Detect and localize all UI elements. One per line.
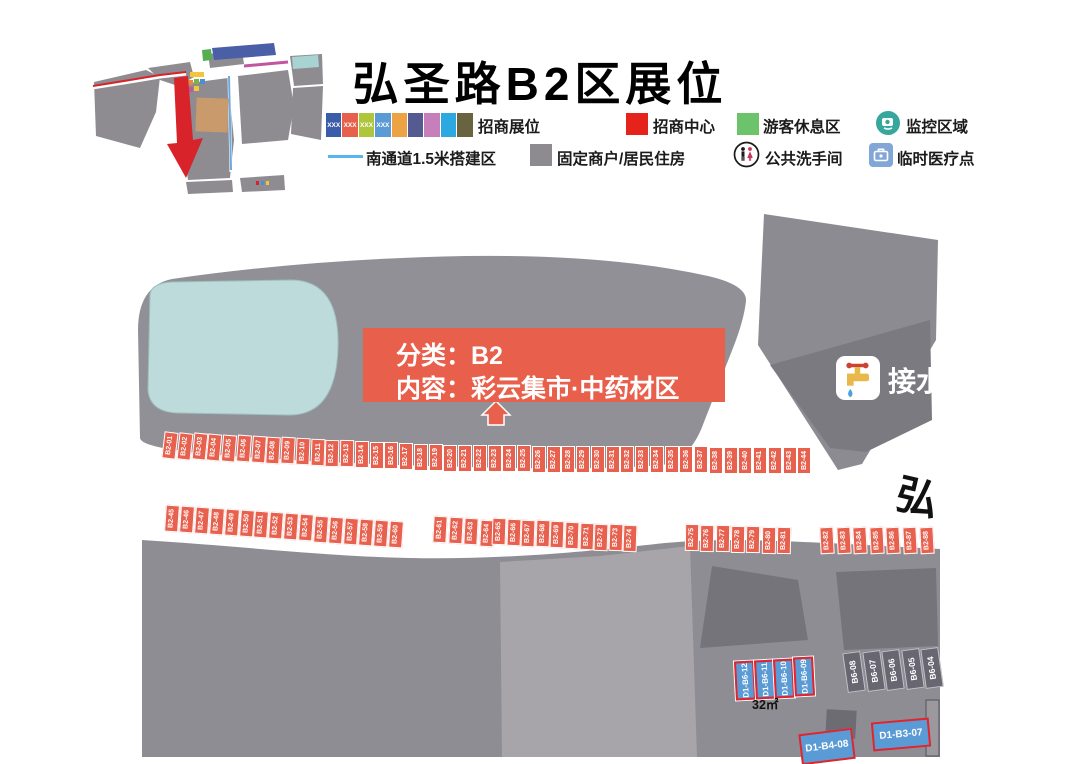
booth-id: B2-25 — [521, 449, 528, 468]
booth-label: B2-35 — [665, 446, 679, 473]
booth-label: B2-50 — [239, 510, 255, 538]
booth-id: B2-10 — [299, 442, 307, 461]
booth-label: B2-44 — [797, 447, 811, 474]
booth-label: B2-32 — [620, 446, 634, 473]
booth-label: B2-33 — [635, 446, 649, 473]
booth-label: B2-66 — [506, 519, 521, 546]
booth-label: B2-31 — [606, 446, 620, 473]
booth-label: B2-39 — [724, 447, 738, 474]
booth-label: B2-49 — [224, 509, 240, 537]
booth-id: B2-73 — [612, 528, 620, 547]
booth-id: B2-77 — [719, 529, 726, 548]
booth-label-d1-b4-08: D1-B4-08 — [798, 728, 855, 764]
booth-label: B2-04 — [206, 433, 223, 461]
booth-id: B2-70 — [568, 526, 576, 545]
booth-id: B2-72 — [597, 527, 605, 546]
booth-id: B2-42 — [771, 451, 778, 470]
booth-label: B2-36 — [679, 446, 693, 473]
booth-label: B2-58 — [358, 518, 374, 546]
booth-id: B2-24 — [506, 449, 513, 468]
booth-id: B2-62 — [452, 521, 460, 540]
booth-id: B2-88 — [923, 531, 931, 550]
booth-label: B2-59 — [373, 519, 389, 547]
booth-label: B2-11 — [310, 439, 325, 466]
booth-label: B2-17 — [399, 443, 413, 470]
booth-id: B2-56 — [332, 520, 340, 540]
booth-label: B2-26 — [532, 446, 546, 473]
booth-id: B2-59 — [376, 523, 384, 543]
booth-id: B2-41 — [757, 451, 764, 470]
booth-id: B2-29 — [580, 450, 587, 469]
booth-label: B2-28 — [561, 446, 575, 473]
booth-label: D1-B6-10 — [773, 658, 795, 698]
booth-id: B2-12 — [329, 443, 336, 462]
booth-label: B2-13 — [340, 440, 354, 467]
booth-label: B2-21 — [458, 445, 472, 472]
booth-id: B2-35 — [668, 450, 675, 469]
booth-label: B2-85 — [869, 527, 884, 555]
booth-label: B2-81 — [777, 527, 791, 554]
booth-label: B2-07 — [251, 436, 267, 464]
booth-id: D1-B6-10 — [779, 661, 790, 696]
booth-area-label: 32㎡ — [752, 694, 778, 713]
booth-id: B2-66 — [510, 523, 518, 542]
booth-id: B6-08 — [847, 660, 860, 684]
booth-id: B2-16 — [388, 446, 395, 465]
water-tap-icon — [836, 356, 880, 400]
booth-id: B2-60 — [391, 524, 399, 544]
booth-id: B2-74 — [627, 529, 635, 548]
booth-label: B2-34 — [650, 446, 664, 473]
booth-label: B2-62 — [448, 517, 463, 545]
booth-id: B2-05 — [225, 438, 234, 458]
booth-id: B2-14 — [358, 445, 365, 464]
booth-label: B2-76 — [700, 524, 714, 551]
booth-id: B2-21 — [462, 449, 469, 468]
booth-id: B2-52 — [272, 516, 280, 536]
booth-label: D1-B6-09 — [792, 657, 814, 697]
booth-label: B2-45 — [164, 505, 180, 533]
booth-id: B2-38 — [712, 450, 719, 469]
booth-id: B2-34 — [653, 450, 660, 469]
booth-label: B2-72 — [594, 523, 609, 550]
booth-label: B2-75 — [685, 524, 699, 551]
booth-id: B2-71 — [583, 527, 591, 546]
booth-id: D1-B6-11 — [759, 662, 770, 697]
booth-id: B2-53 — [287, 517, 295, 537]
booth-id: B2-31 — [609, 450, 616, 469]
booth-id: B2-69 — [554, 525, 562, 544]
booth-label: B2-15 — [370, 442, 384, 469]
booth-id: B2-18 — [417, 448, 424, 467]
booth-id: B2-87 — [906, 531, 914, 550]
booth-label: B2-83 — [836, 527, 851, 555]
booth-id: B2-30 — [594, 450, 601, 469]
booth-id: B2-49 — [227, 513, 235, 533]
booth-label: B2-63 — [464, 518, 479, 546]
booth-label: B2-60 — [388, 520, 404, 548]
booth-id: B2-79 — [750, 530, 757, 549]
booth-label: B2-40 — [738, 447, 752, 474]
booth-id: B2-54 — [302, 518, 310, 538]
booth-label: B2-48 — [209, 508, 225, 536]
booth-id: B2-03 — [195, 437, 204, 457]
booth-label: B2-80 — [761, 527, 775, 554]
booth-id: B2-44 — [801, 451, 808, 470]
booth-label: B2-18 — [414, 444, 428, 471]
booth-label: B2-41 — [753, 447, 767, 474]
booth-id: B2-13 — [343, 444, 350, 463]
booth-label: B2-78 — [731, 526, 745, 553]
booth-label: B2-10 — [295, 438, 310, 466]
booth-label: B2-73 — [608, 524, 623, 551]
booth-id: B2-04 — [210, 438, 219, 458]
booth-id: B2-80 — [765, 531, 772, 550]
booth-id: B2-19 — [432, 448, 439, 467]
booth-label: B2-02 — [176, 432, 193, 460]
booth-id: B2-20 — [447, 449, 454, 468]
booth-label: B2-38 — [709, 447, 723, 474]
booth-id: B2-63 — [467, 522, 475, 541]
booth-label: B2-84 — [852, 527, 867, 555]
booth-label: B2-79 — [746, 526, 760, 553]
booth-id: B2-39 — [727, 451, 734, 470]
booth-id: B2-27 — [550, 450, 557, 469]
booth-id: B6-04 — [925, 656, 938, 680]
booth-label: B2-27 — [547, 446, 561, 473]
booth-id: B2-82 — [823, 531, 831, 550]
booth-id: B2-47 — [198, 511, 206, 531]
booth-label: B2-09 — [280, 437, 295, 465]
booth-id: B2-65 — [495, 522, 503, 541]
booth-label: B2-54 — [298, 514, 314, 542]
booth-label: B2-51 — [253, 511, 269, 539]
booth-id: B2-48 — [213, 512, 221, 532]
booth-id: B2-28 — [565, 450, 572, 469]
callout-content: 内容：彩云集市·中药材区 — [396, 369, 679, 405]
booth-id: B2-51 — [257, 515, 265, 535]
booth-id: B2-68 — [539, 524, 547, 543]
booth-id: D1-B6-09 — [798, 659, 809, 694]
booth-label: B2-68 — [535, 520, 550, 547]
dark-building-2 — [836, 568, 938, 650]
booth-id: B2-06 — [240, 439, 248, 459]
water-point-label: 接水 — [888, 360, 944, 400]
booth-label: B2-53 — [283, 513, 299, 541]
booth-id: B2-86 — [889, 531, 897, 550]
booth-label: B2-37 — [694, 446, 708, 473]
booth-label: B2-71 — [579, 523, 594, 550]
booth-label: B2-82 — [819, 527, 834, 555]
booth-label: B2-29 — [576, 446, 590, 473]
booth-id: B2-75 — [688, 528, 695, 547]
booth-label: B2-43 — [783, 447, 797, 474]
booth-id: B2-83 — [840, 531, 848, 550]
booth-id: B2-64 — [483, 523, 491, 542]
booth-label: B2-52 — [268, 512, 284, 540]
booth-label: B2-24 — [502, 445, 516, 472]
booth-id: B2-43 — [786, 451, 793, 470]
booth-label: B2-65 — [492, 518, 507, 545]
booth-id: B2-50 — [242, 514, 250, 534]
booth-id: B2-45 — [168, 509, 176, 529]
booth-label: B2-14 — [355, 441, 369, 468]
booth-label: B2-19 — [429, 444, 443, 471]
booth-label: B2-77 — [715, 525, 729, 552]
booth-id: B2-08 — [269, 441, 277, 460]
booth-id: B2-40 — [742, 451, 749, 470]
booth-id: D1-B6-12 — [740, 663, 751, 698]
booth-label: B2-67 — [521, 519, 536, 546]
booth-id: B2-81 — [780, 531, 787, 550]
pond — [148, 280, 338, 415]
booth-id: B2-55 — [317, 519, 325, 539]
booth-label: B2-23 — [488, 445, 502, 472]
poster-root: 弘圣路B2区展位 XXXXXXXXXXXX 招商展位 招商中心 游客休息区 监控… — [0, 0, 1080, 764]
booth-id: B2-58 — [362, 522, 370, 542]
category-callout: 分类：B2 内容：彩云集市·中药材区 — [363, 328, 725, 402]
booth-id: B2-01 — [165, 436, 174, 456]
booth-id: B2-84 — [856, 531, 864, 550]
booth-label: B2-06 — [236, 435, 252, 463]
booth-label: B2-88 — [919, 527, 934, 555]
booth-label: B2-74 — [623, 525, 638, 552]
booth-id: B2-67 — [524, 523, 532, 542]
booth-id: B6-07 — [867, 659, 880, 683]
booth-id: B2-11 — [314, 443, 322, 462]
booth-label: B2-46 — [179, 506, 195, 534]
booth-label: B2-69 — [550, 521, 565, 548]
booth-label: B2-56 — [328, 516, 344, 544]
callout-category: 分类：B2 — [396, 336, 503, 372]
booth-id: B2-32 — [624, 450, 631, 469]
lower-light-block — [500, 546, 697, 757]
booth-label: B2-55 — [313, 515, 329, 543]
booth-id: B2-17 — [403, 447, 410, 466]
booth-label-d1-b3-07: D1-B3-07 — [871, 718, 931, 752]
booth-label: B2-30 — [591, 446, 605, 473]
booth-id: B2-46 — [183, 510, 191, 530]
booth-id: B2-26 — [535, 449, 542, 468]
booth-id: B2-22 — [476, 449, 483, 468]
booth-id: B2-23 — [491, 449, 498, 468]
booth-id: B6-06 — [886, 658, 899, 682]
booth-label: B2-47 — [194, 507, 210, 535]
booth-label: B2-05 — [221, 434, 237, 462]
booth-id: B2-33 — [639, 450, 646, 469]
booth-id: B2-15 — [373, 446, 380, 465]
booth-id: B2-09 — [284, 441, 292, 460]
booth-id: B2-61 — [436, 520, 444, 539]
booth-id: B2-85 — [873, 531, 881, 550]
booth-label: B2-20 — [443, 445, 457, 472]
booth-id: B2-36 — [683, 450, 690, 469]
booth-id: B2-78 — [734, 530, 741, 549]
booth-label: B2-08 — [265, 436, 281, 464]
booth-label: B2-61 — [432, 516, 447, 544]
booth-label: B2-42 — [768, 447, 782, 474]
booth-label: B2-70 — [565, 522, 580, 549]
booth-id: B2-76 — [704, 528, 711, 547]
booth-label: B2-57 — [343, 517, 359, 545]
booth-label: B2-25 — [517, 445, 531, 472]
booth-id: B2-02 — [180, 436, 189, 456]
booth-label: B2-87 — [902, 527, 917, 555]
booth-label: B2-16 — [384, 442, 398, 469]
booth-id: B2-07 — [254, 440, 262, 460]
booth-label: B2-22 — [473, 445, 487, 472]
booth-id: B6-05 — [906, 657, 919, 681]
booth-id: B2-37 — [698, 450, 705, 469]
booth-label: B2-86 — [886, 527, 901, 555]
booth-id: B2-57 — [347, 521, 355, 541]
booth-label: B2-12 — [325, 439, 340, 466]
